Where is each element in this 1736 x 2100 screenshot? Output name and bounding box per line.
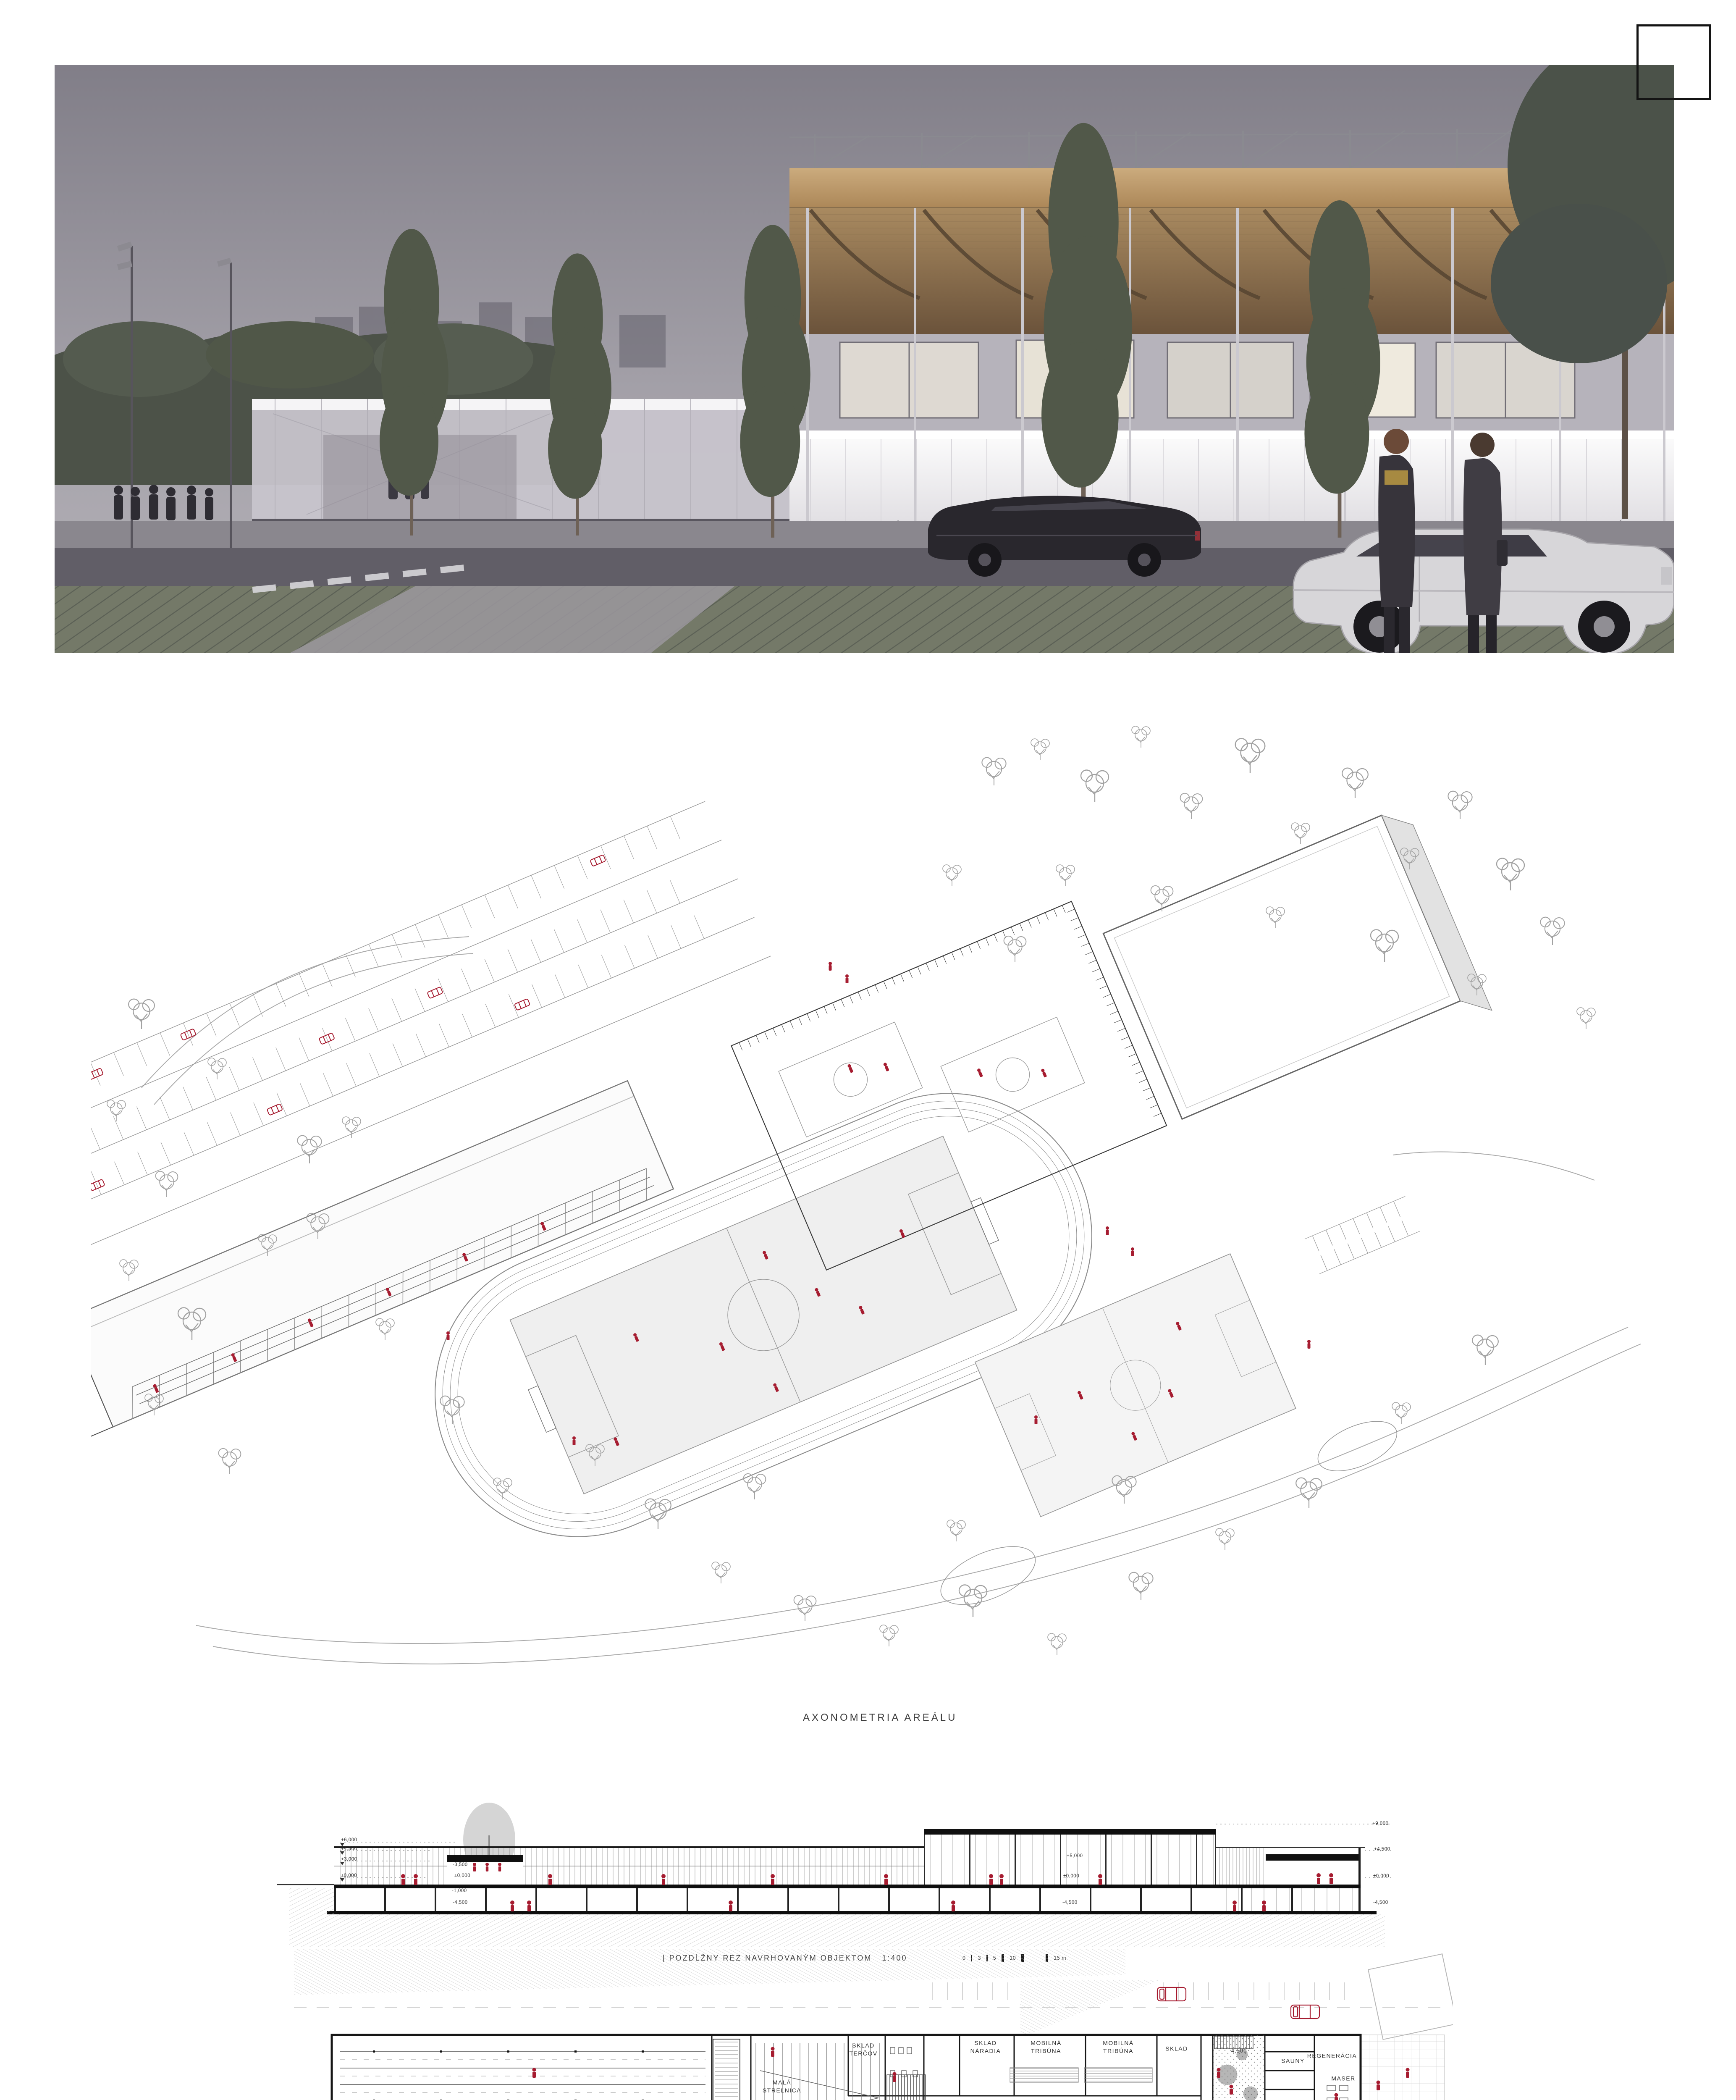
level-mark: -3,500 bbox=[453, 1862, 468, 1869]
east-parking bbox=[1305, 1196, 1420, 1273]
level-mark: ±0,000 bbox=[1373, 1873, 1389, 1880]
level-mark: +9,000 bbox=[1372, 1821, 1389, 1827]
room-label-sklad-tercov: SKLAD TERČOV bbox=[849, 2042, 877, 2058]
east-terrace bbox=[1361, 2035, 1445, 2100]
level-mark: -4,500 bbox=[1062, 1900, 1078, 1906]
upper-windows bbox=[840, 340, 1575, 418]
photo-render-svg bbox=[55, 65, 1674, 653]
room-label-mobilna-1: MOBILNÁ TRIBÚNA bbox=[1031, 2039, 1062, 2055]
room-label-sauny: SAUNY bbox=[1281, 2057, 1305, 2065]
axon-caption: AXONOMETRIA AREÁLU bbox=[803, 1712, 957, 1724]
room-label-mala-strelnica: MALÁ STREĽNICA bbox=[763, 2079, 801, 2095]
level-mark: +4,500 bbox=[1374, 1846, 1390, 1853]
level-mark: +5,000 bbox=[1067, 1853, 1083, 1860]
left-pavilion bbox=[252, 399, 789, 522]
atrium bbox=[1213, 2035, 1265, 2100]
level-mark: -4,500 bbox=[453, 1900, 468, 1906]
axon-svg bbox=[91, 710, 1645, 1701]
room-label-maser: MASER bbox=[1331, 2075, 1355, 2083]
level-mark: ±0,000 bbox=[1063, 1873, 1079, 1880]
floor-plan-drawing bbox=[277, 1949, 1453, 2100]
slope-hatch bbox=[294, 1949, 1125, 1995]
photo-render bbox=[55, 65, 1674, 653]
plan-svg bbox=[277, 1949, 1453, 2100]
level-mark: ±0,000 bbox=[341, 1873, 357, 1879]
level-mark: -4,500 bbox=[1373, 1900, 1388, 1906]
room-label-sklad-naradia: SKLAD NÁRADIA bbox=[970, 2039, 1001, 2055]
axonometric-drawing bbox=[91, 710, 1645, 1701]
small-pitch bbox=[975, 1254, 1296, 1517]
level-mark: +6,000 bbox=[341, 1837, 357, 1844]
section-drawing bbox=[277, 1785, 1411, 1953]
section-svg bbox=[277, 1785, 1411, 1953]
corner-registration-square bbox=[1636, 24, 1711, 100]
level-mark: +4,500 bbox=[341, 1846, 357, 1853]
level-label: -4,500 bbox=[1229, 2047, 1247, 2055]
existing-hall bbox=[1103, 806, 1492, 1139]
level-mark: +3,000 bbox=[341, 1856, 357, 1863]
level-mark: -1,000 bbox=[452, 1888, 467, 1895]
polycarbonate-band bbox=[789, 430, 1674, 521]
level-mark: ±0,000 bbox=[454, 1873, 470, 1879]
room-label-regeneracia: REGENERÁCIA bbox=[1307, 2052, 1357, 2060]
room-label-sklad: SKLAD bbox=[1165, 2045, 1188, 2053]
room-label-mobilna-2: MOBILNÁ TRIBÚNA bbox=[1103, 2039, 1134, 2055]
